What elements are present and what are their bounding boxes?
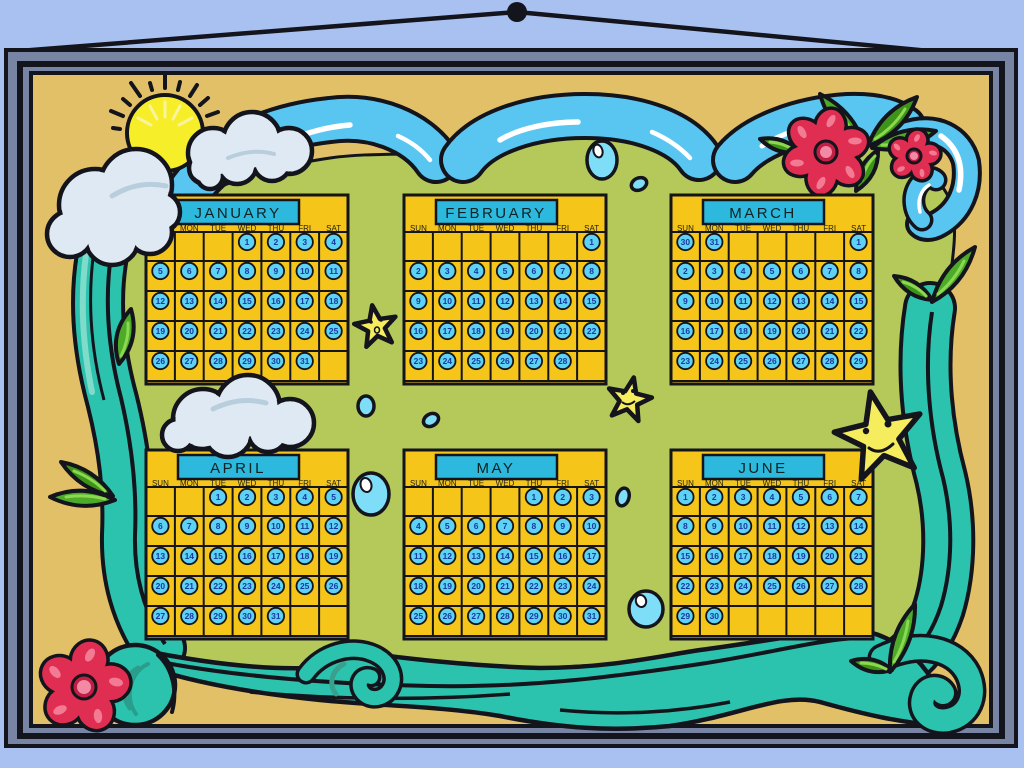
- svg-text:14: 14: [854, 521, 864, 531]
- svg-text:7: 7: [503, 521, 508, 531]
- svg-text:16: 16: [710, 551, 720, 561]
- svg-text:27: 27: [156, 611, 166, 621]
- svg-text:27: 27: [825, 581, 835, 591]
- svg-text:10: 10: [587, 521, 597, 531]
- svg-text:10: 10: [443, 296, 453, 306]
- svg-text:28: 28: [500, 611, 510, 621]
- svg-text:30: 30: [681, 237, 691, 247]
- svg-text:30: 30: [710, 611, 720, 621]
- svg-text:5: 5: [799, 492, 804, 502]
- svg-text:6: 6: [799, 266, 804, 276]
- svg-text:22: 22: [587, 326, 597, 336]
- svg-text:2: 2: [560, 492, 565, 502]
- svg-text:11: 11: [472, 296, 481, 306]
- svg-text:28: 28: [558, 356, 568, 366]
- svg-text:7: 7: [560, 266, 565, 276]
- svg-text:5: 5: [331, 492, 336, 502]
- svg-text:19: 19: [329, 551, 339, 561]
- svg-text:JANUARY: JANUARY: [194, 205, 281, 222]
- svg-text:19: 19: [443, 581, 453, 591]
- svg-text:MAY: MAY: [477, 460, 516, 477]
- svg-text:MARCH: MARCH: [729, 205, 797, 222]
- svg-text:11: 11: [739, 296, 748, 306]
- svg-text:17: 17: [271, 551, 281, 561]
- svg-text:16: 16: [558, 551, 568, 561]
- svg-text:26: 26: [500, 356, 510, 366]
- svg-text:5: 5: [503, 266, 508, 276]
- svg-text:18: 18: [471, 326, 481, 336]
- svg-text:22: 22: [681, 581, 691, 591]
- svg-text:9: 9: [274, 266, 279, 276]
- svg-text:29: 29: [854, 356, 864, 366]
- svg-text:25: 25: [300, 581, 310, 591]
- svg-text:19: 19: [500, 326, 510, 336]
- svg-text:28: 28: [854, 581, 864, 591]
- svg-text:24: 24: [710, 356, 720, 366]
- svg-text:22: 22: [529, 581, 539, 591]
- svg-text:23: 23: [710, 581, 720, 591]
- svg-text:4: 4: [741, 266, 746, 276]
- svg-text:1: 1: [245, 237, 250, 247]
- svg-text:21: 21: [854, 551, 864, 561]
- svg-text:10: 10: [300, 266, 310, 276]
- svg-text:17: 17: [443, 326, 453, 336]
- svg-text:7: 7: [856, 492, 861, 502]
- svg-text:28: 28: [185, 611, 195, 621]
- svg-text:7: 7: [187, 521, 192, 531]
- svg-text:16: 16: [681, 326, 691, 336]
- svg-text:FEBRUARY: FEBRUARY: [445, 205, 546, 222]
- svg-text:20: 20: [185, 326, 195, 336]
- svg-text:30: 30: [558, 611, 568, 621]
- svg-text:20: 20: [796, 326, 806, 336]
- svg-text:16: 16: [271, 296, 281, 306]
- svg-text:20: 20: [529, 326, 539, 336]
- svg-text:18: 18: [738, 326, 748, 336]
- svg-text:10: 10: [271, 521, 281, 531]
- svg-text:11: 11: [414, 551, 423, 561]
- svg-text:15: 15: [529, 551, 539, 561]
- svg-text:4: 4: [474, 266, 479, 276]
- svg-text:24: 24: [443, 356, 453, 366]
- svg-text:19: 19: [156, 326, 166, 336]
- svg-text:31: 31: [271, 611, 281, 621]
- svg-text:17: 17: [587, 551, 597, 561]
- svg-text:18: 18: [767, 551, 777, 561]
- svg-text:6: 6: [187, 266, 192, 276]
- svg-text:11: 11: [300, 521, 309, 531]
- svg-text:13: 13: [825, 521, 835, 531]
- svg-text:26: 26: [156, 356, 166, 366]
- svg-text:11: 11: [329, 266, 338, 276]
- svg-text:24: 24: [300, 326, 310, 336]
- svg-text:23: 23: [558, 581, 568, 591]
- svg-text:1: 1: [532, 492, 537, 502]
- svg-text:25: 25: [471, 356, 481, 366]
- svg-text:23: 23: [271, 326, 281, 336]
- svg-text:30: 30: [242, 611, 252, 621]
- svg-text:5: 5: [770, 266, 775, 276]
- svg-text:12: 12: [443, 551, 453, 561]
- svg-text:15: 15: [681, 551, 691, 561]
- svg-text:15: 15: [854, 296, 864, 306]
- svg-text:21: 21: [825, 326, 835, 336]
- svg-text:11: 11: [768, 521, 777, 531]
- svg-text:31: 31: [587, 611, 597, 621]
- svg-text:20: 20: [825, 551, 835, 561]
- svg-text:29: 29: [242, 356, 252, 366]
- svg-text:4: 4: [331, 237, 336, 247]
- svg-text:14: 14: [213, 296, 223, 306]
- svg-text:13: 13: [471, 551, 481, 561]
- svg-text:JUNE: JUNE: [738, 460, 787, 477]
- svg-text:15: 15: [587, 296, 597, 306]
- svg-text:23: 23: [414, 356, 424, 366]
- svg-text:18: 18: [414, 581, 424, 591]
- svg-text:8: 8: [245, 266, 250, 276]
- svg-text:4: 4: [770, 492, 775, 502]
- svg-text:20: 20: [156, 581, 166, 591]
- svg-text:3: 3: [445, 266, 450, 276]
- svg-text:3: 3: [302, 237, 307, 247]
- svg-text:3: 3: [712, 266, 717, 276]
- svg-text:23: 23: [242, 581, 252, 591]
- svg-text:2: 2: [683, 266, 688, 276]
- svg-text:21: 21: [500, 581, 510, 591]
- svg-text:28: 28: [213, 356, 223, 366]
- svg-text:2: 2: [712, 492, 717, 502]
- svg-text:9: 9: [560, 521, 565, 531]
- svg-text:22: 22: [213, 581, 223, 591]
- svg-text:31: 31: [710, 237, 720, 247]
- svg-text:29: 29: [529, 611, 539, 621]
- svg-text:14: 14: [558, 296, 568, 306]
- svg-text:31: 31: [300, 356, 310, 366]
- svg-text:22: 22: [854, 326, 864, 336]
- svg-text:29: 29: [213, 611, 223, 621]
- svg-text:7: 7: [827, 266, 832, 276]
- svg-text:27: 27: [185, 356, 195, 366]
- svg-text:2: 2: [274, 237, 279, 247]
- svg-text:1: 1: [589, 237, 594, 247]
- svg-text:8: 8: [683, 521, 688, 531]
- svg-text:9: 9: [712, 521, 717, 531]
- svg-text:4: 4: [416, 521, 421, 531]
- svg-text:9: 9: [683, 296, 688, 306]
- svg-text:8: 8: [856, 266, 861, 276]
- svg-text:30: 30: [271, 356, 281, 366]
- svg-text:13: 13: [529, 296, 539, 306]
- svg-text:18: 18: [300, 551, 310, 561]
- svg-text:15: 15: [242, 296, 252, 306]
- svg-text:3: 3: [741, 492, 746, 502]
- svg-text:12: 12: [156, 296, 166, 306]
- svg-text:17: 17: [300, 296, 310, 306]
- svg-text:23: 23: [681, 356, 691, 366]
- svg-text:5: 5: [445, 521, 450, 531]
- svg-text:9: 9: [245, 521, 250, 531]
- svg-text:25: 25: [414, 611, 424, 621]
- svg-text:26: 26: [329, 581, 339, 591]
- svg-text:APRIL: APRIL: [210, 460, 266, 477]
- svg-text:19: 19: [796, 551, 806, 561]
- svg-text:26: 26: [796, 581, 806, 591]
- svg-text:22: 22: [242, 326, 252, 336]
- svg-text:3: 3: [274, 492, 279, 502]
- svg-text:14: 14: [185, 551, 195, 561]
- svg-text:12: 12: [767, 296, 777, 306]
- svg-text:16: 16: [414, 326, 424, 336]
- svg-text:12: 12: [329, 521, 339, 531]
- svg-text:25: 25: [767, 581, 777, 591]
- svg-text:13: 13: [156, 551, 166, 561]
- svg-text:14: 14: [825, 296, 835, 306]
- svg-text:14: 14: [500, 551, 510, 561]
- svg-text:13: 13: [796, 296, 806, 306]
- svg-text:6: 6: [158, 521, 163, 531]
- svg-text:12: 12: [796, 521, 806, 531]
- svg-text:28: 28: [825, 356, 835, 366]
- svg-text:1: 1: [856, 237, 861, 247]
- svg-text:2: 2: [245, 492, 250, 502]
- svg-text:24: 24: [738, 581, 748, 591]
- svg-text:15: 15: [213, 551, 223, 561]
- svg-text:17: 17: [710, 326, 720, 336]
- svg-text:8: 8: [589, 266, 594, 276]
- svg-text:6: 6: [827, 492, 832, 502]
- svg-text:13: 13: [185, 296, 195, 306]
- svg-text:17: 17: [738, 551, 748, 561]
- svg-text:21: 21: [213, 326, 223, 336]
- svg-text:26: 26: [767, 356, 777, 366]
- svg-text:3: 3: [589, 492, 594, 502]
- svg-text:6: 6: [474, 521, 479, 531]
- svg-text:24: 24: [587, 581, 597, 591]
- svg-text:5: 5: [158, 266, 163, 276]
- svg-text:9: 9: [416, 296, 421, 306]
- svg-text:2: 2: [416, 266, 421, 276]
- svg-text:27: 27: [529, 356, 539, 366]
- svg-text:6: 6: [532, 266, 537, 276]
- svg-text:29: 29: [681, 611, 691, 621]
- svg-text:25: 25: [738, 356, 748, 366]
- svg-text:20: 20: [471, 581, 481, 591]
- svg-text:10: 10: [710, 296, 720, 306]
- svg-text:19: 19: [767, 326, 777, 336]
- svg-text:16: 16: [242, 551, 252, 561]
- svg-text:27: 27: [471, 611, 481, 621]
- svg-text:1: 1: [216, 492, 221, 502]
- svg-text:8: 8: [532, 521, 537, 531]
- svg-text:25: 25: [329, 326, 339, 336]
- svg-text:10: 10: [738, 521, 748, 531]
- svg-text:1: 1: [683, 492, 688, 502]
- svg-text:12: 12: [500, 296, 510, 306]
- svg-text:7: 7: [216, 266, 221, 276]
- svg-text:4: 4: [302, 492, 307, 502]
- svg-text:26: 26: [443, 611, 453, 621]
- svg-text:8: 8: [216, 521, 221, 531]
- svg-text:27: 27: [796, 356, 806, 366]
- svg-text:21: 21: [558, 326, 568, 336]
- svg-text:24: 24: [271, 581, 281, 591]
- svg-text:21: 21: [185, 581, 195, 591]
- svg-text:18: 18: [329, 296, 339, 306]
